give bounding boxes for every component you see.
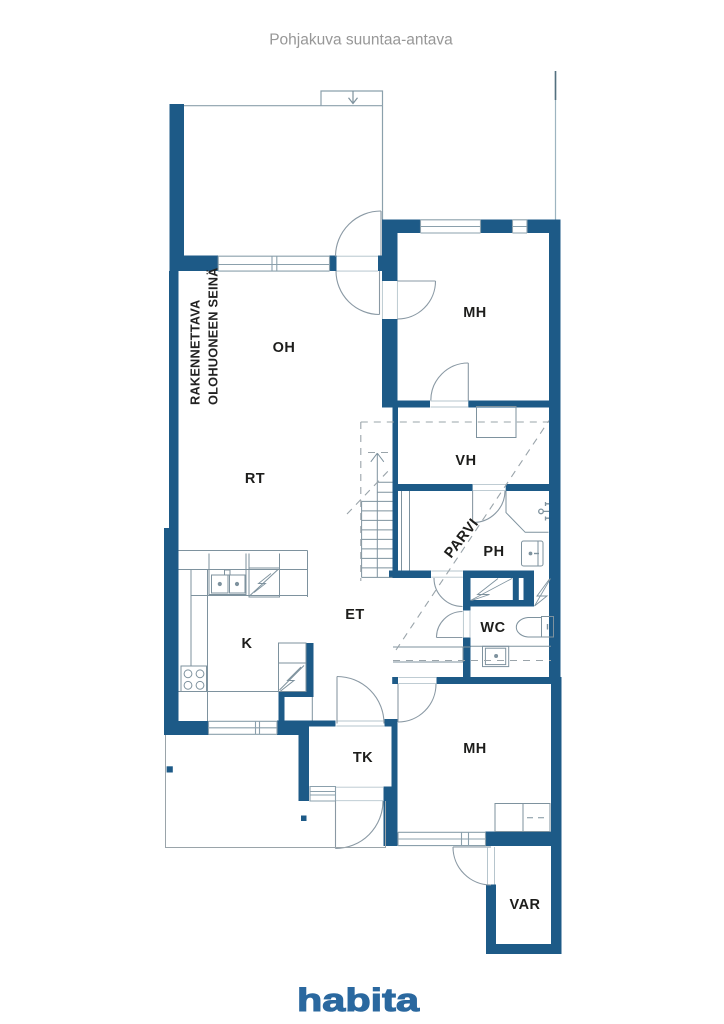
svg-text:OH: OH bbox=[273, 340, 296, 356]
svg-text:MH: MH bbox=[463, 741, 487, 757]
svg-text:RAKENNETTAVA: RAKENNETTAVA bbox=[188, 300, 203, 405]
svg-text:VH: VH bbox=[455, 453, 476, 469]
svg-text:OLOHUONEEN SEINÄ: OLOHUONEEN SEINÄ bbox=[206, 267, 221, 405]
svg-text:habita: habita bbox=[297, 982, 420, 1018]
svg-text:Pohjakuva suuntaa-antava: Pohjakuva suuntaa-antava bbox=[269, 32, 453, 49]
svg-text:WC: WC bbox=[480, 620, 505, 636]
svg-text:TK: TK bbox=[353, 750, 373, 766]
svg-text:PH: PH bbox=[483, 544, 504, 560]
svg-text:K: K bbox=[242, 636, 253, 652]
svg-text:VAR: VAR bbox=[509, 897, 540, 913]
svg-text:RT: RT bbox=[245, 471, 265, 487]
svg-text:ET: ET bbox=[345, 607, 365, 623]
svg-text:MH: MH bbox=[463, 305, 487, 321]
